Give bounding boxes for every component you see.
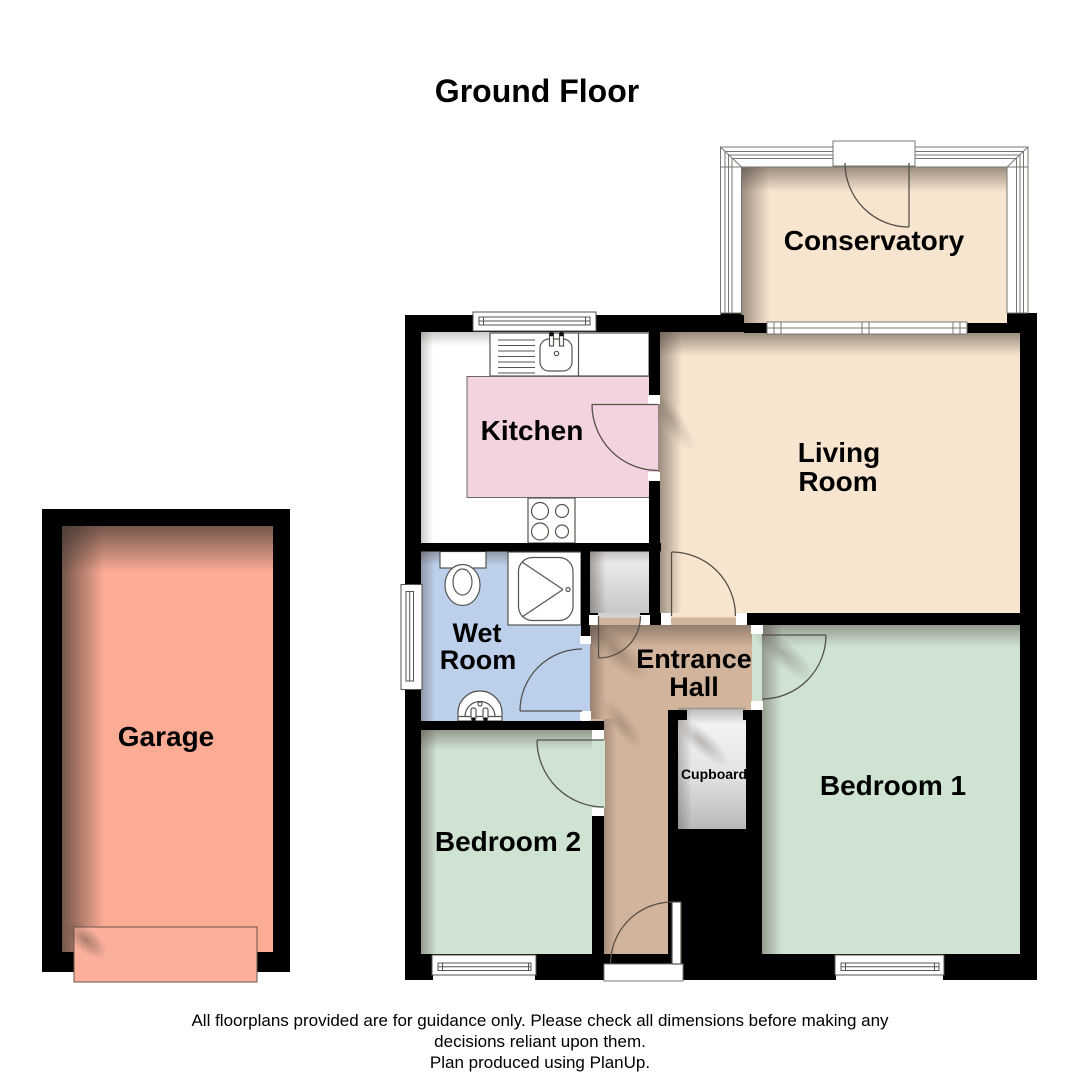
svg-text:Plan produced using PlanUp.: Plan produced using PlanUp.: [430, 1053, 650, 1072]
svg-text:Hall: Hall: [669, 672, 719, 702]
svg-text:Bedroom 1: Bedroom 1: [820, 770, 966, 801]
svg-text:Bedroom 2: Bedroom 2: [435, 826, 581, 857]
svg-text:Kitchen: Kitchen: [481, 415, 584, 446]
svg-text:Conservatory: Conservatory: [784, 225, 965, 256]
svg-text:Wet: Wet: [452, 618, 501, 648]
svg-text:All floorplans provided are fo: All floorplans provided are for guidance…: [191, 1011, 889, 1030]
svg-text:decisions reliant upon them.: decisions reliant upon them.: [434, 1032, 646, 1051]
svg-text:Garage: Garage: [118, 721, 215, 752]
svg-text:Living: Living: [798, 437, 880, 468]
svg-text:Entrance: Entrance: [636, 644, 752, 674]
svg-text:Ground Floor: Ground Floor: [435, 73, 639, 109]
svg-text:Room: Room: [798, 466, 877, 497]
svg-text:Room: Room: [440, 645, 517, 675]
svg-text:Cupboard: Cupboard: [681, 766, 747, 782]
